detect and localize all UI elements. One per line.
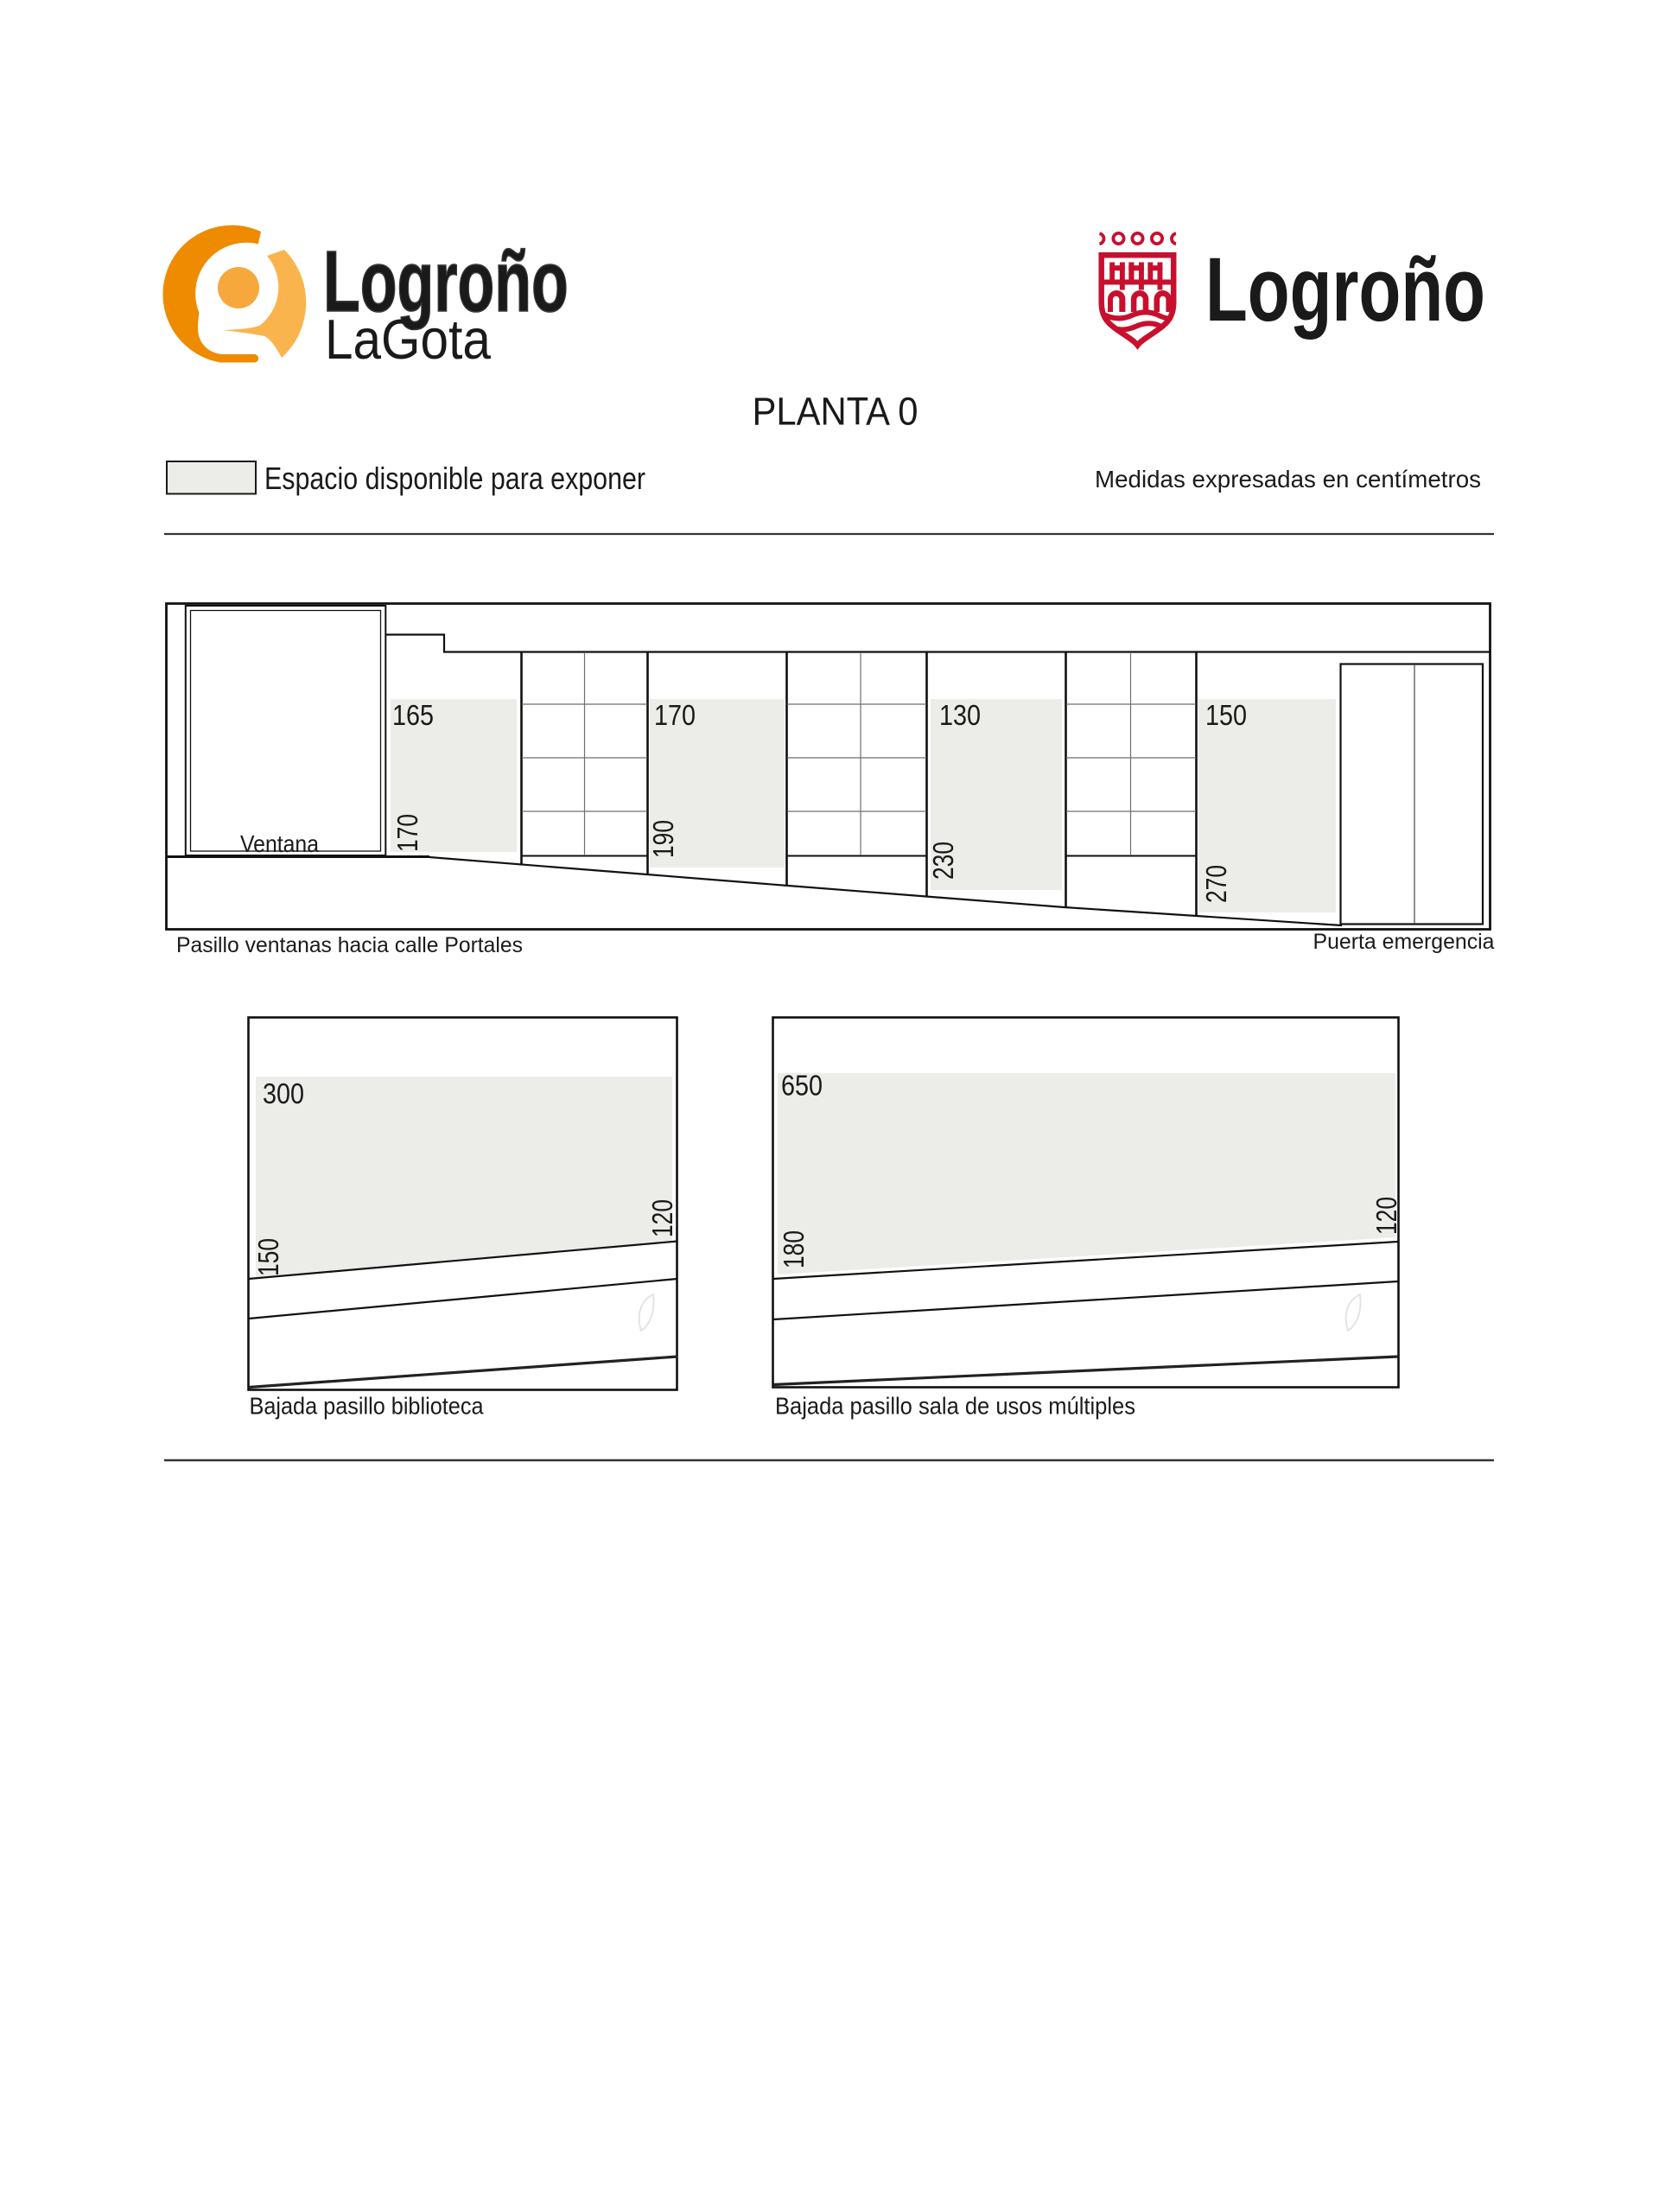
svg-text:190: 190 [647, 820, 679, 858]
svg-text:Ventana: Ventana [240, 830, 320, 857]
svg-text:230: 230 [927, 842, 959, 880]
svg-text:150: 150 [252, 1238, 284, 1276]
svg-text:150: 150 [1205, 699, 1247, 731]
svg-text:Bajada pasillo sala de usos mú: Bajada pasillo sala de usos múltiples [775, 1393, 1135, 1420]
svg-text:130: 130 [939, 699, 981, 731]
svg-text:165: 165 [392, 699, 434, 731]
svg-text:120: 120 [646, 1199, 678, 1237]
svg-text:300: 300 [263, 1077, 304, 1109]
svg-text:Bajada pasillo biblioteca: Bajada pasillo biblioteca [250, 1393, 484, 1420]
svg-text:Espacio disponible para expone: Espacio disponible para exponer [264, 461, 645, 496]
svg-text:Puerta emergencia: Puerta emergencia [1313, 930, 1496, 954]
svg-text:Logroño: Logroño [1205, 238, 1485, 340]
svg-text:Pasillo ventanas hacia calle P: Pasillo ventanas hacia calle Portales [176, 933, 523, 957]
svg-text:LaGota: LaGota [325, 308, 491, 372]
svg-text:170: 170 [391, 814, 423, 852]
svg-text:650: 650 [781, 1070, 823, 1102]
svg-text:Medidas expresadas en centímet: Medidas expresadas en centímetros [1095, 466, 1481, 493]
svg-text:120: 120 [1370, 1197, 1402, 1235]
svg-text:PLANTA 0: PLANTA 0 [753, 390, 918, 434]
svg-text:170: 170 [654, 699, 696, 731]
svg-text:180: 180 [778, 1230, 810, 1268]
svg-text:270: 270 [1200, 865, 1232, 903]
